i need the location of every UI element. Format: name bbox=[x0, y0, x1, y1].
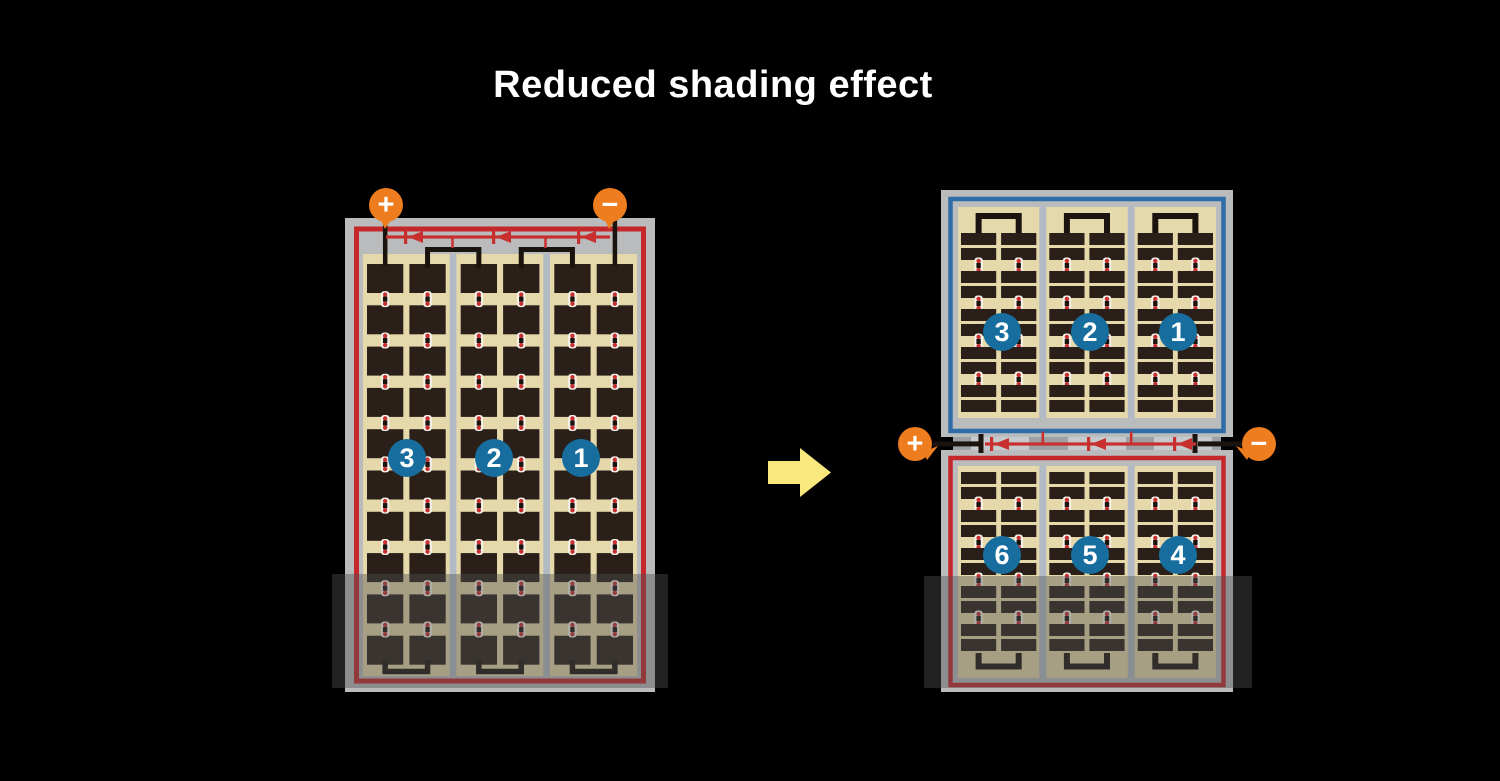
right-shading-overlay bbox=[924, 576, 1252, 688]
right-top-string-badge-3: 3 bbox=[983, 313, 1021, 351]
transition-arrow-icon bbox=[768, 448, 831, 497]
right-bottom-string-badge-4: 4 bbox=[1159, 536, 1197, 574]
left-string-badge-3: 3 bbox=[388, 439, 426, 477]
solar-modules-diagram bbox=[0, 0, 1500, 781]
right-negative-terminal: − bbox=[1242, 427, 1276, 461]
right-positive-terminal: + bbox=[898, 427, 932, 461]
left-positive-terminal: + bbox=[369, 188, 403, 222]
right-top-string-badge-2: 2 bbox=[1071, 313, 1109, 351]
diagram-canvas: Reduced shading effect 3 2 1 3 2 1 6 5 4… bbox=[0, 0, 1500, 781]
left-string-badge-1: 1 bbox=[562, 439, 600, 477]
left-negative-terminal: − bbox=[593, 188, 627, 222]
right-bottom-string-badge-5: 5 bbox=[1071, 536, 1109, 574]
left-string-badge-2: 2 bbox=[475, 439, 513, 477]
left-shading-overlay bbox=[332, 574, 668, 688]
right-bottom-string-badge-6: 6 bbox=[983, 536, 1021, 574]
right-top-string-badge-1: 1 bbox=[1159, 313, 1197, 351]
